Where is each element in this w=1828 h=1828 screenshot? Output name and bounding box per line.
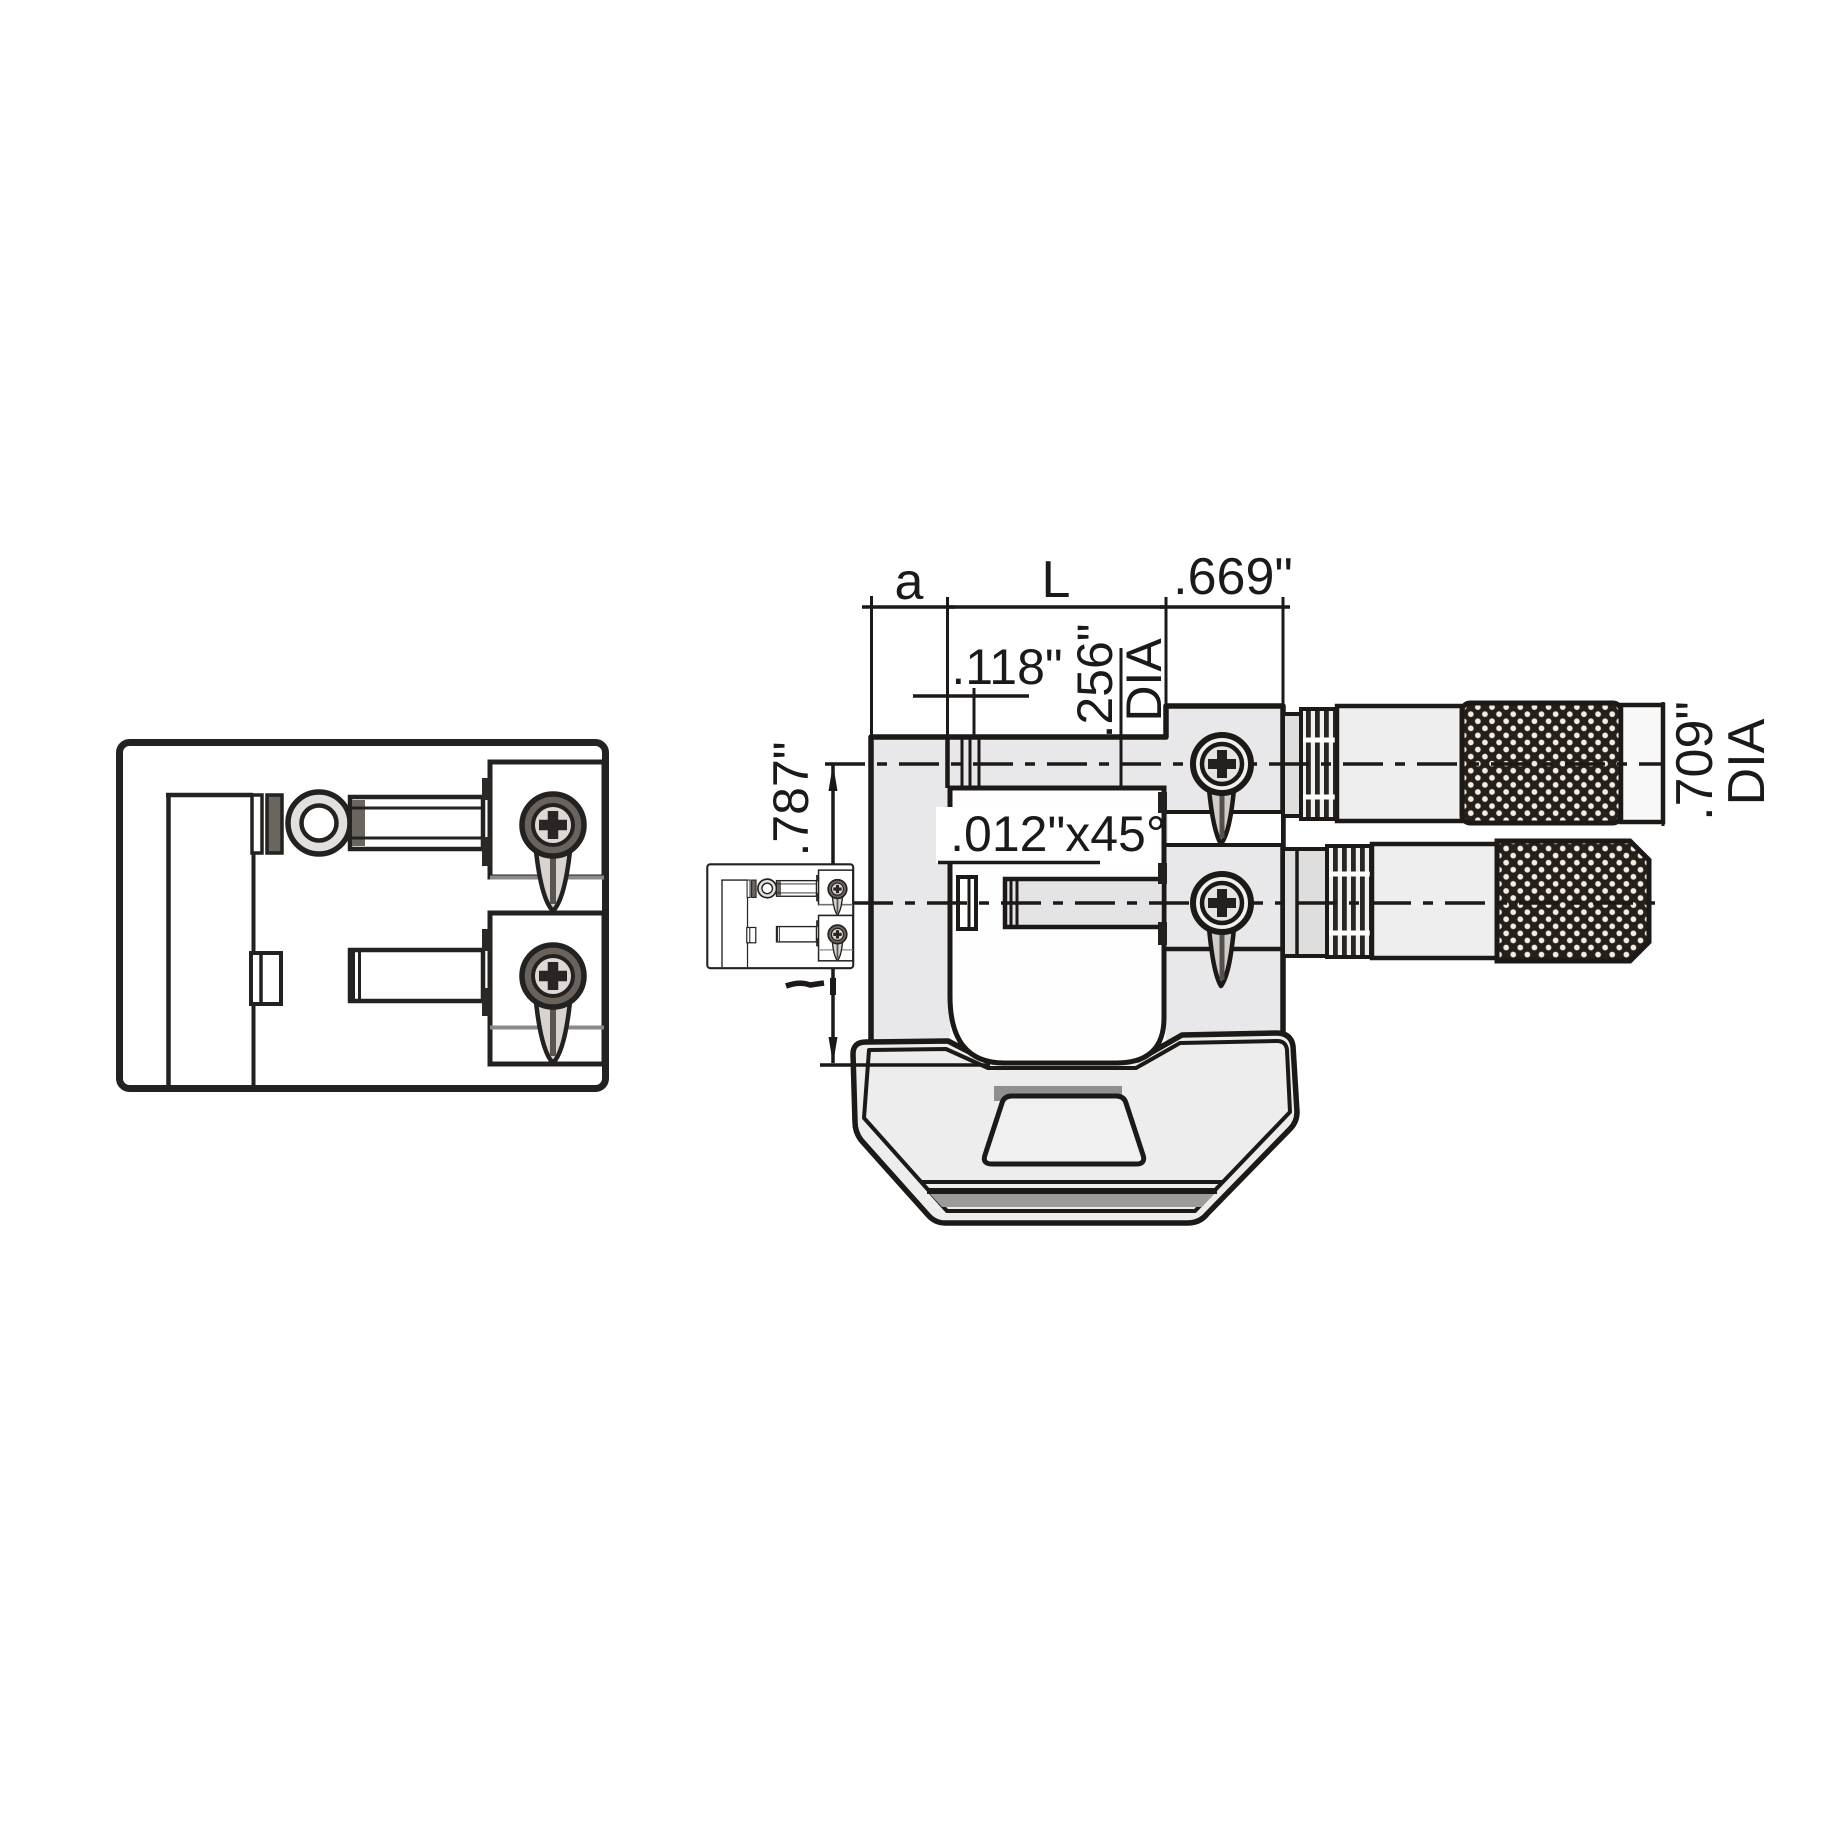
svg-text:L: L <box>1042 551 1071 609</box>
svg-text:.118": .118" <box>951 639 1062 695</box>
svg-text:.709": .709" <box>1666 701 1724 821</box>
svg-text:.669": .669" <box>1173 548 1293 606</box>
svg-text:a: a <box>895 553 924 611</box>
svg-text:DIA: DIA <box>1116 638 1172 722</box>
svg-text:.012"x45°: .012"x45° <box>950 806 1166 862</box>
svg-text:.256": .256" <box>1067 623 1123 738</box>
svg-text:DIA: DIA <box>1718 718 1776 805</box>
svg-text:.787": .787" <box>763 741 819 856</box>
